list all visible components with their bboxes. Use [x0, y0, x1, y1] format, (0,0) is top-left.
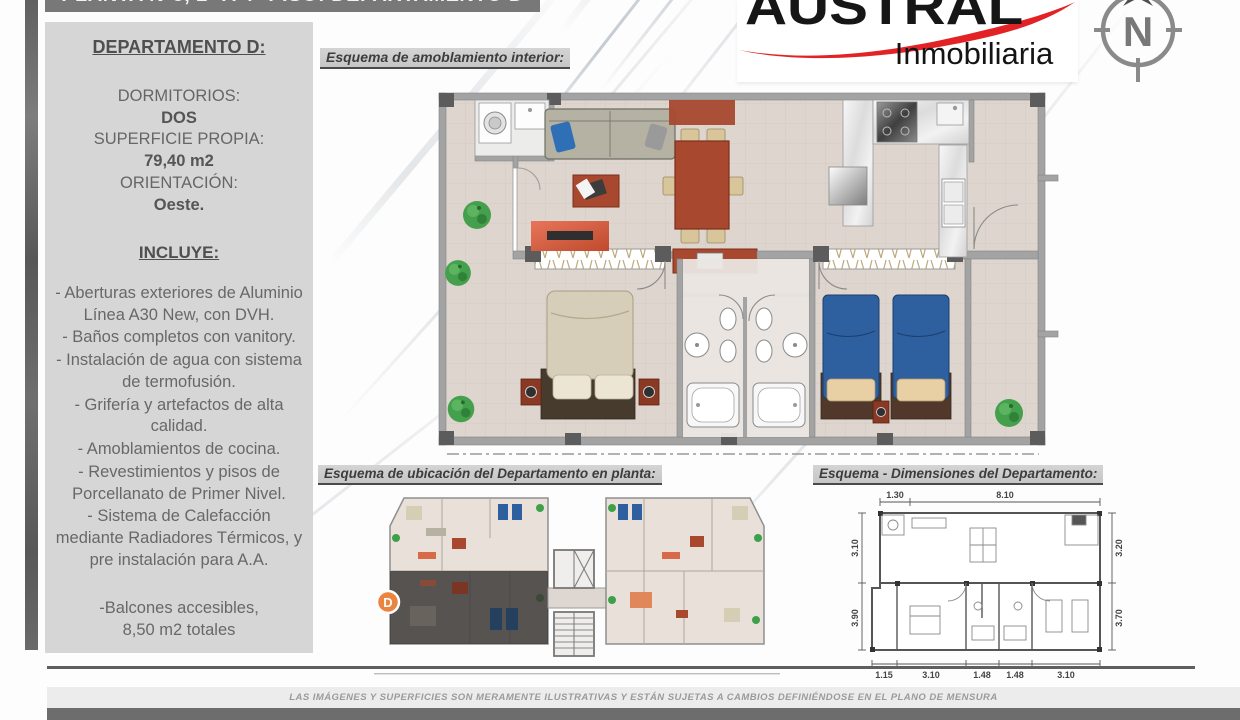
sidebar-panel: DEPARTAMENTO D: DORMITORIOS: DOS SUPERFI…	[45, 22, 313, 653]
rug-top	[669, 100, 735, 125]
include-item: - Instalación de agua con sistema de ter…	[53, 350, 305, 394]
dims-outline	[870, 511, 1102, 652]
unit-d-highlight	[390, 571, 548, 644]
footer-disclaimer-strip: LAS IMÁGENES Y SUPERFICIES SON MERAMENTE…	[47, 687, 1240, 708]
section-header-furnishing: Esquema de amoblamiento interior:	[320, 48, 570, 69]
furnished-floor-plan	[425, 83, 1060, 463]
spec-pair: DORMITORIOS: DOS	[53, 86, 305, 130]
include-item: - Baños completos con vanitory.	[53, 327, 305, 349]
location-floor-plate: D	[372, 492, 782, 692]
balconies-line1: -Balcones accesibles,	[53, 598, 305, 620]
balconies-note: -Balcones accesibles, 8,50 m2 totales	[53, 598, 305, 642]
svg-text:D: D	[383, 595, 392, 610]
compass-north-icon: N	[1086, 0, 1190, 90]
include-item: - Aberturas exteriores de Aluminio Línea…	[53, 283, 305, 327]
spec-pair: SUPERFICIE PROPIA: 79,40 m2	[53, 129, 305, 173]
kitchen-sink-icon	[942, 179, 965, 227]
svg-text:8.10: 8.10	[996, 490, 1014, 500]
double-bed	[547, 291, 633, 379]
unit-d-badge: D	[377, 591, 399, 613]
include-item: - Amoblamientos de cocina.	[53, 439, 305, 461]
spec-value: DOS	[53, 108, 305, 130]
page-title-text: PLANTA N°3, 2° A 4° PISO: DEPARTAMENTO D	[61, 0, 524, 7]
company-logo: AUSTRAL Inmobiliaria	[737, 0, 1078, 82]
spec-label: DORMITORIOS:	[53, 86, 305, 108]
svg-text:3.10: 3.10	[922, 670, 940, 680]
svg-text:1.48: 1.48	[973, 670, 991, 680]
includes-heading: INCLUYE:	[53, 242, 305, 264]
balconies-line2: 8,50 m2 totales	[53, 620, 305, 642]
left-accent-strip	[25, 0, 38, 650]
window-left	[513, 168, 517, 251]
stove-icon	[877, 102, 917, 142]
fridge-icon	[829, 167, 867, 205]
svg-text:3.70: 3.70	[1114, 609, 1124, 627]
includes-list: - Aberturas exteriores de Aluminio Línea…	[53, 283, 305, 572]
footer-bar	[47, 708, 1240, 720]
spec-value: Oeste.	[53, 195, 305, 217]
svg-text:1.48: 1.48	[1006, 670, 1024, 680]
left-wing	[390, 498, 548, 644]
sidebar-heading: DEPARTAMENTO D:	[53, 36, 305, 60]
sidebar-specs: DORMITORIOS: DOS SUPERFICIE PROPIA: 79,4…	[53, 86, 305, 217]
stairs-icon	[554, 612, 594, 656]
logo-brand-text: AUSTRAL	[745, 0, 1023, 35]
svg-text:1.15: 1.15	[875, 670, 893, 680]
logo-subtitle-text: Inmobiliaria	[879, 36, 1069, 72]
spec-label: ORIENTACIÓN:	[53, 173, 305, 195]
tv-icon	[547, 231, 593, 240]
svg-text:3.10: 3.10	[850, 539, 860, 557]
right-wing	[606, 498, 764, 644]
svg-text:3.10: 3.10	[1057, 670, 1075, 680]
disclaimer-text: LAS IMÁGENES Y SUPERFICIES SON MERAMENTE…	[289, 692, 997, 703]
section-header-dimensions: Esquema - Dimensiones del Departamento:	[813, 465, 1103, 485]
include-item: - Grifería y artefactos de alta calidad.	[53, 395, 305, 439]
spec-label: SUPERFICIE PROPIA:	[53, 129, 305, 151]
page-title: PLANTA N°3, 2° A 4° PISO: DEPARTAMENTO D	[45, 0, 540, 12]
footer-rule	[47, 666, 1195, 669]
include-item: - Revestimientos y pisos de Porcellanato…	[53, 462, 305, 506]
svg-text:1.30: 1.30	[886, 490, 904, 500]
spec-pair: ORIENTACIÓN: Oeste.	[53, 173, 305, 217]
bathrooms	[683, 259, 809, 437]
spec-value: 79,40 m2	[53, 151, 305, 173]
svg-text:3.20: 3.20	[1114, 539, 1124, 557]
building-core	[548, 550, 606, 656]
laundry-sink-icon	[515, 103, 545, 129]
flyer-page: PLANTA N°3, 2° A 4° PISO: DEPARTAMENTO D…	[0, 0, 1240, 720]
section-header-location: Esquema de ubicación del Departamento en…	[318, 465, 662, 485]
svg-text:3.90: 3.90	[850, 609, 860, 627]
laundry-area	[475, 100, 549, 156]
dining-table	[675, 141, 729, 229]
include-item: - Sistema de Calefacción mediante Radiad…	[53, 506, 305, 571]
svg-text:N: N	[1123, 8, 1153, 55]
